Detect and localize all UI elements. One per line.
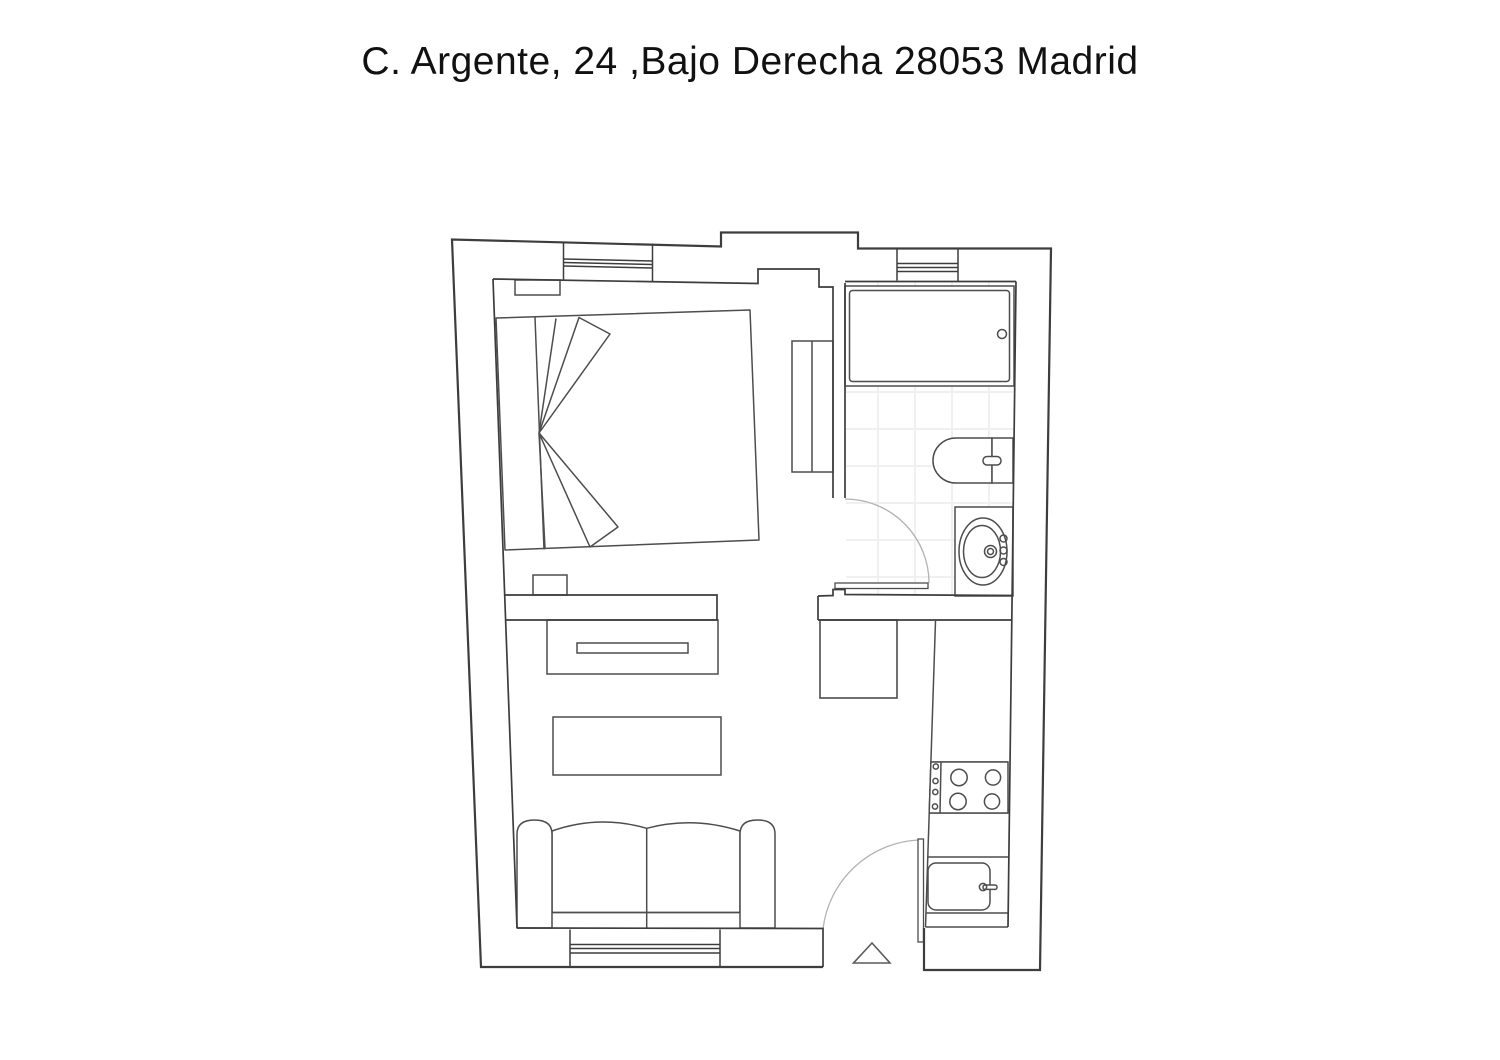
tv-cabinet-slot: [577, 643, 688, 653]
stove-knob-divider: [940, 762, 941, 813]
sofa-left-arm: [517, 820, 552, 928]
stove: [929, 762, 1008, 813]
bathtub: [845, 286, 1014, 386]
bathroom-window: [897, 249, 958, 282]
toilet-flush-button: [983, 457, 1001, 466]
sofa-right-arm: [740, 820, 775, 928]
entrance-door-swing-arc: [823, 840, 919, 929]
entrance-triangle-marker: [854, 943, 891, 963]
entrance-door: [823, 839, 924, 942]
inner-wall-bottom: [517, 928, 823, 967]
bed: [496, 310, 759, 550]
bedroom-living-divider-wall: [504, 595, 717, 620]
floor-plan-drawing: [0, 0, 1500, 1060]
kitchen-sink-tap: [983, 885, 997, 889]
washbasin-vanity: [955, 507, 1013, 596]
radiator-top: [515, 280, 560, 295]
radiator-bottom: [533, 575, 567, 595]
fridge: [820, 620, 897, 698]
coffee-table: [553, 717, 721, 775]
wardrobe: [792, 341, 833, 472]
toilet: [933, 438, 1013, 483]
sofa: [517, 820, 775, 928]
bathroom-door-leaf: [835, 583, 928, 589]
entrance-door-leaf: [918, 839, 924, 942]
tv-cabinet: [547, 620, 718, 674]
bedroom-window: [564, 242, 653, 282]
floor-plan-page: C. Argente, 24 ,Bajo Derecha 28053 Madri…: [0, 0, 1500, 1060]
living-room-window: [570, 930, 720, 968]
kitchen-sink: [928, 863, 997, 910]
